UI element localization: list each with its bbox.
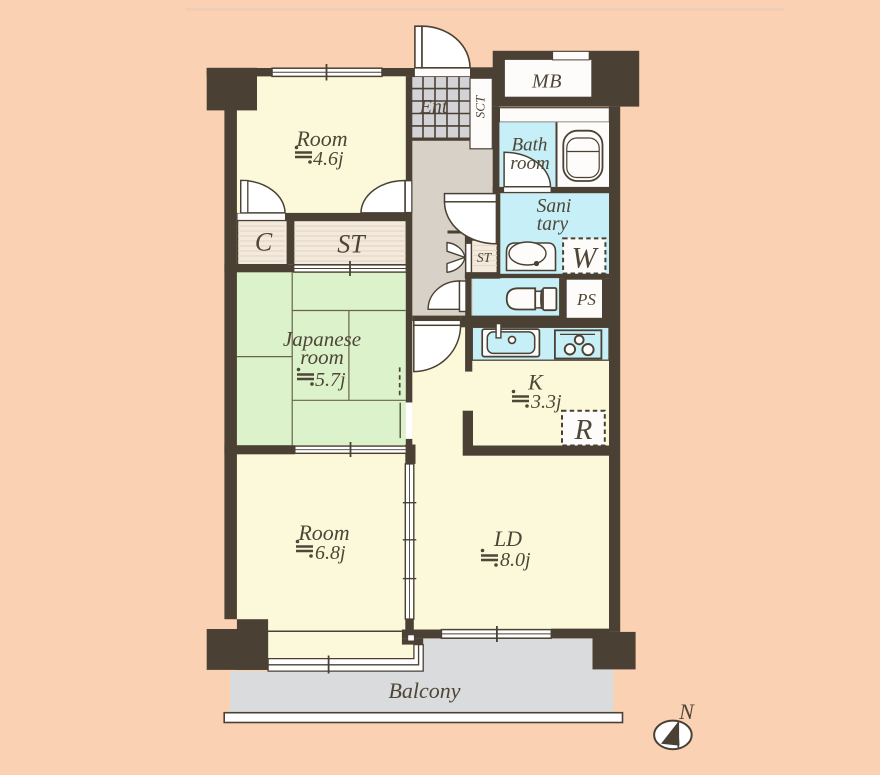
svg-text:ST: ST bbox=[477, 250, 493, 265]
svg-text:tary: tary bbox=[537, 214, 569, 235]
svg-text:PS: PS bbox=[576, 290, 596, 309]
svg-text:LD: LD bbox=[493, 526, 522, 551]
svg-text:ST: ST bbox=[337, 230, 366, 259]
svg-text:4.6j: 4.6j bbox=[313, 148, 344, 170]
svg-text:room: room bbox=[300, 345, 344, 369]
svg-text:8.0j: 8.0j bbox=[500, 549, 531, 571]
svg-text:MB: MB bbox=[531, 71, 562, 93]
svg-text:W: W bbox=[572, 242, 600, 275]
svg-text:N: N bbox=[678, 699, 695, 724]
svg-text:R: R bbox=[574, 414, 593, 446]
svg-text:Balcony: Balcony bbox=[388, 678, 460, 703]
svg-text:Ent: Ent bbox=[419, 96, 448, 118]
svg-text:C: C bbox=[255, 228, 273, 257]
svg-text:5.7j: 5.7j bbox=[315, 369, 346, 391]
svg-text:room: room bbox=[510, 153, 549, 174]
svg-text:SCT: SCT bbox=[472, 95, 487, 118]
svg-text:6.8j: 6.8j bbox=[315, 542, 346, 564]
svg-text:3.3j: 3.3j bbox=[530, 391, 562, 413]
